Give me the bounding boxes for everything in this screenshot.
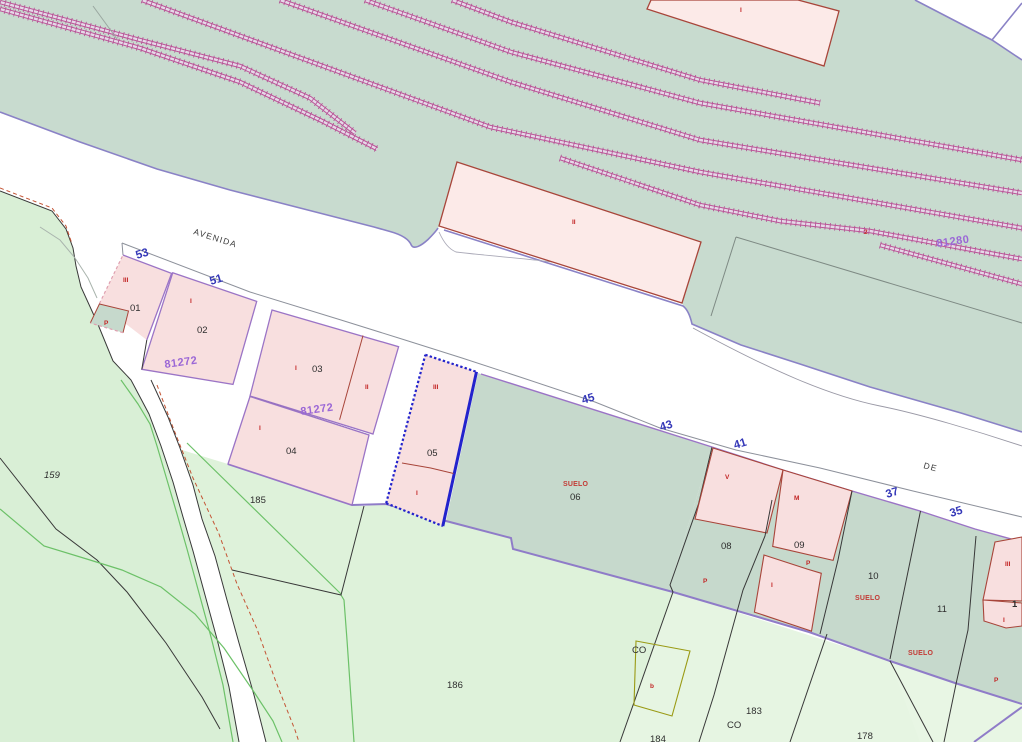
svg-text:P: P — [994, 677, 999, 684]
svg-text:M: M — [794, 495, 799, 502]
svg-text:05: 05 — [427, 448, 438, 459]
svg-text:SUELO: SUELO — [908, 650, 933, 657]
svg-text:b: b — [650, 683, 654, 690]
svg-text:178: 178 — [857, 731, 873, 742]
svg-text:SUELO: SUELO — [855, 595, 880, 602]
svg-text:III: III — [433, 384, 439, 391]
svg-text:183: 183 — [746, 706, 762, 717]
svg-text:08: 08 — [721, 541, 732, 552]
svg-text:184: 184 — [650, 734, 666, 742]
svg-text:04: 04 — [286, 446, 297, 457]
svg-text:11: 11 — [937, 604, 947, 615]
svg-text:I: I — [771, 582, 773, 589]
svg-text:SUELO: SUELO — [563, 481, 588, 488]
svg-text:02: 02 — [197, 325, 208, 336]
svg-text:01: 01 — [130, 303, 141, 314]
svg-text:1: 1 — [1012, 599, 1018, 610]
svg-text:185: 185 — [250, 495, 266, 506]
svg-text:III: III — [123, 277, 129, 284]
svg-text:V: V — [725, 474, 730, 481]
svg-text:P: P — [104, 320, 109, 327]
svg-text:I: I — [1003, 617, 1005, 624]
svg-text:2: 2 — [864, 229, 868, 236]
svg-text:I: I — [740, 7, 742, 14]
svg-text:03: 03 — [312, 364, 323, 375]
svg-text:186: 186 — [447, 680, 463, 691]
svg-text:II: II — [365, 384, 369, 391]
svg-text:I: I — [416, 490, 418, 497]
svg-text:CO: CO — [632, 645, 646, 656]
svg-text:III: III — [1005, 561, 1011, 568]
svg-text:P: P — [703, 578, 708, 585]
svg-text:10: 10 — [868, 571, 879, 582]
svg-text:159: 159 — [44, 470, 61, 481]
svg-text:06: 06 — [570, 492, 581, 503]
svg-text:I: I — [295, 365, 297, 372]
svg-text:P: P — [806, 560, 811, 567]
svg-text:II: II — [572, 219, 576, 226]
svg-text:I: I — [259, 425, 261, 432]
svg-text:I: I — [190, 298, 192, 305]
svg-text:09: 09 — [794, 540, 805, 551]
svg-text:CO: CO — [727, 720, 741, 731]
